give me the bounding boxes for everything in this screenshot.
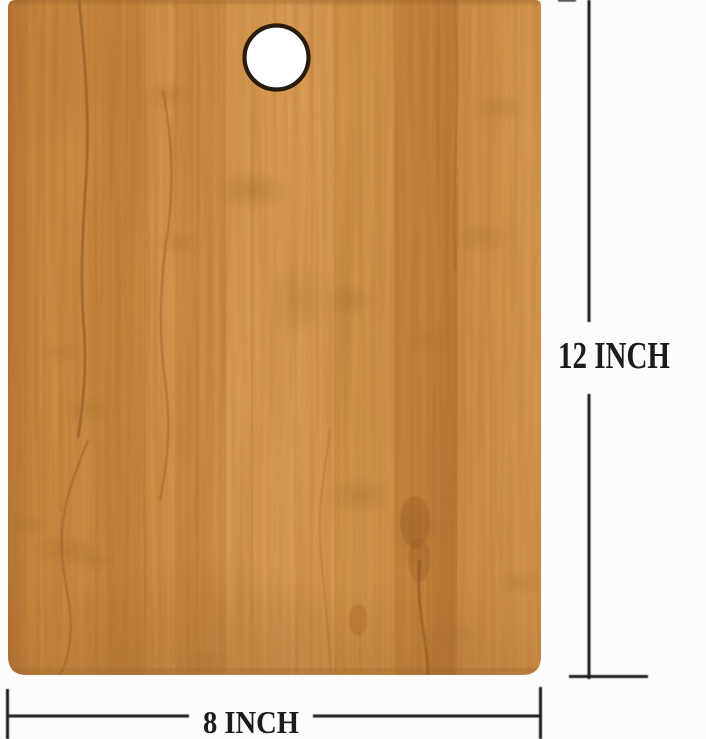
svg-text:8 INCH: 8 INCH [203, 704, 299, 739]
svg-text:12 INCH: 12 INCH [558, 335, 670, 377]
